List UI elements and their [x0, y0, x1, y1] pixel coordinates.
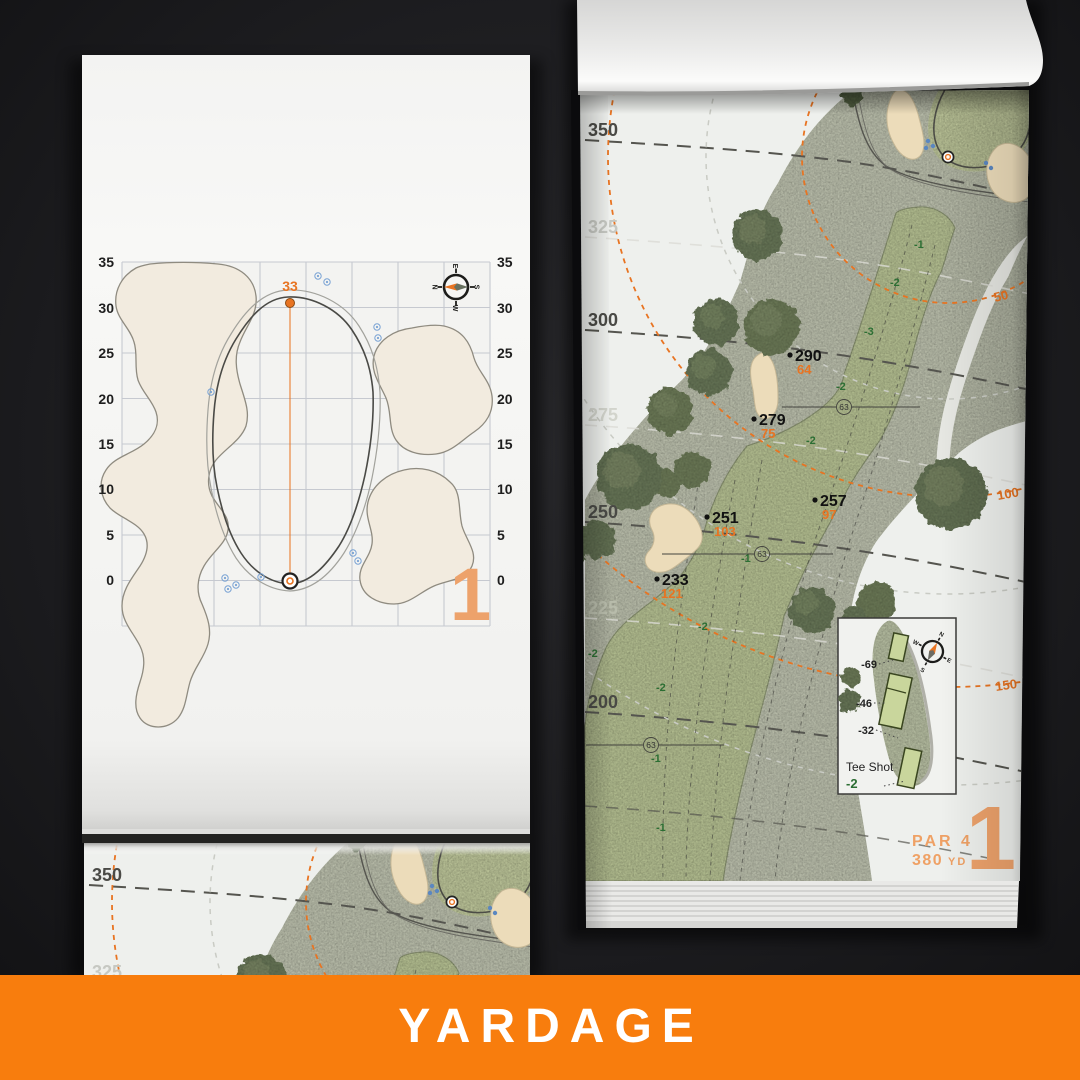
svg-text:10: 10 [98, 481, 114, 497]
svg-text:10: 10 [497, 481, 513, 497]
svg-text:N: N [431, 284, 438, 289]
svg-text:S: S [473, 285, 480, 290]
svg-text:E: E [451, 264, 458, 269]
svg-text:0: 0 [497, 572, 505, 588]
svg-text:0: 0 [106, 572, 114, 588]
svg-text:1: 1 [450, 553, 491, 636]
svg-text:15: 15 [497, 436, 513, 452]
svg-text:5: 5 [106, 527, 114, 543]
svg-text:20: 20 [98, 391, 114, 407]
svg-text:W: W [451, 305, 458, 312]
svg-text:25: 25 [98, 345, 114, 361]
svg-text:25: 25 [497, 345, 513, 361]
svg-text:20: 20 [497, 391, 513, 407]
svg-text:35: 35 [98, 254, 114, 270]
svg-text:5: 5 [497, 527, 505, 543]
svg-text:33: 33 [282, 278, 298, 294]
svg-text:30: 30 [98, 300, 114, 316]
svg-text:15: 15 [98, 436, 114, 452]
svg-text:35: 35 [497, 254, 513, 270]
svg-text:YARDAGE: YARDAGE [398, 1000, 704, 1053]
svg-text:30: 30 [497, 300, 513, 316]
